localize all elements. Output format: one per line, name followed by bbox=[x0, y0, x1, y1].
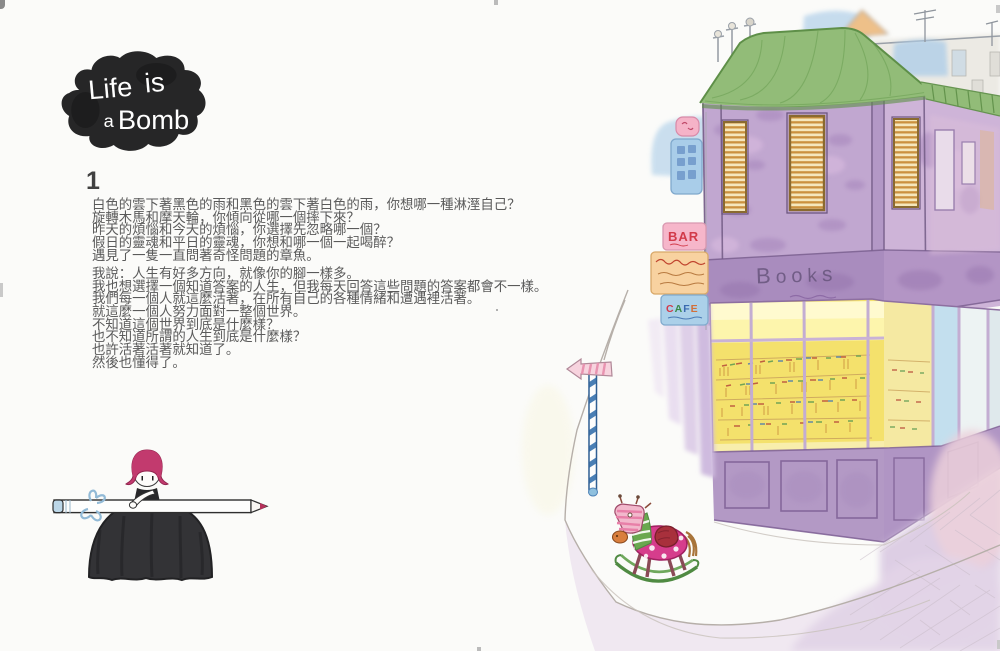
svg-text:a: a bbox=[104, 111, 115, 131]
svg-text:is: is bbox=[143, 66, 165, 98]
svg-text:Bomb: Bomb bbox=[118, 104, 189, 135]
svg-text:BAR: BAR bbox=[668, 229, 699, 244]
svg-text:Books: Books bbox=[756, 261, 838, 289]
svg-text:Life: Life bbox=[87, 71, 134, 105]
svg-text:CAFE: CAFE bbox=[666, 303, 699, 315]
